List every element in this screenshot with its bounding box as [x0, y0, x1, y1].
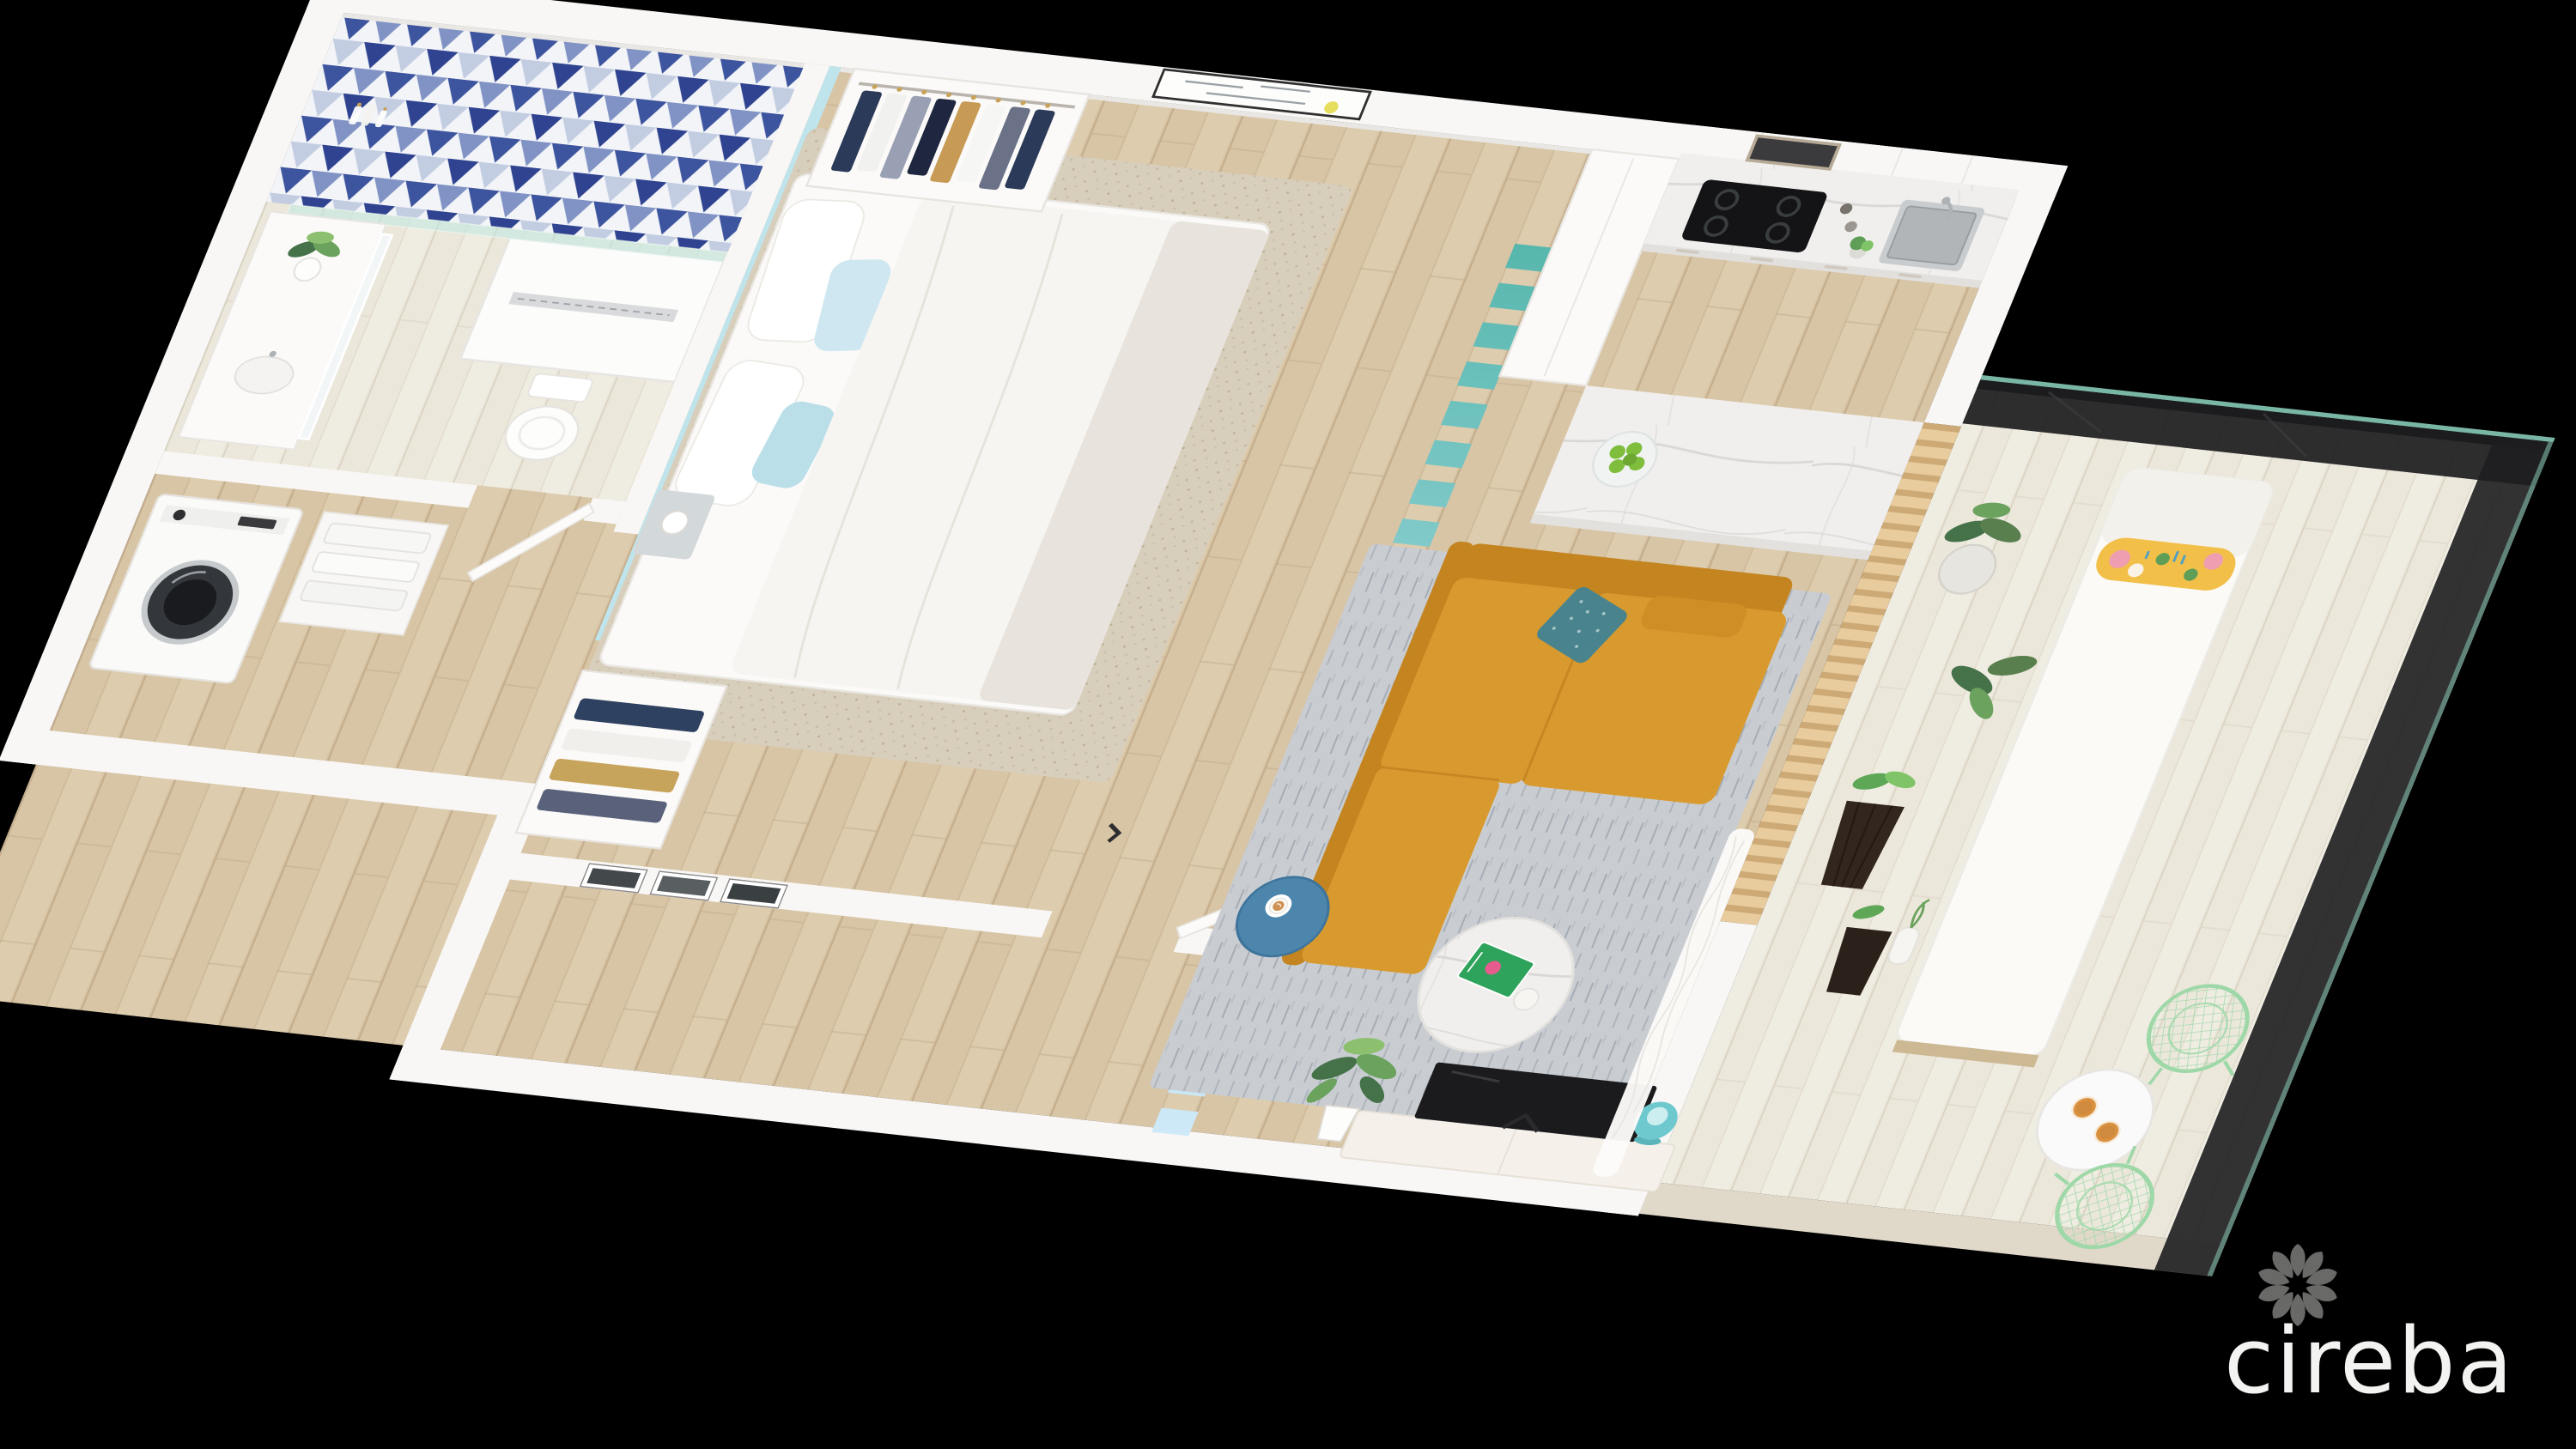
cooktop	[1680, 179, 1829, 253]
open-wardrobe	[806, 69, 1089, 211]
render-canvas: cireba	[0, 0, 2576, 1449]
floorplan-render: cireba	[0, 0, 2576, 1449]
brand-wordmark: cireba	[2224, 1308, 2514, 1414]
